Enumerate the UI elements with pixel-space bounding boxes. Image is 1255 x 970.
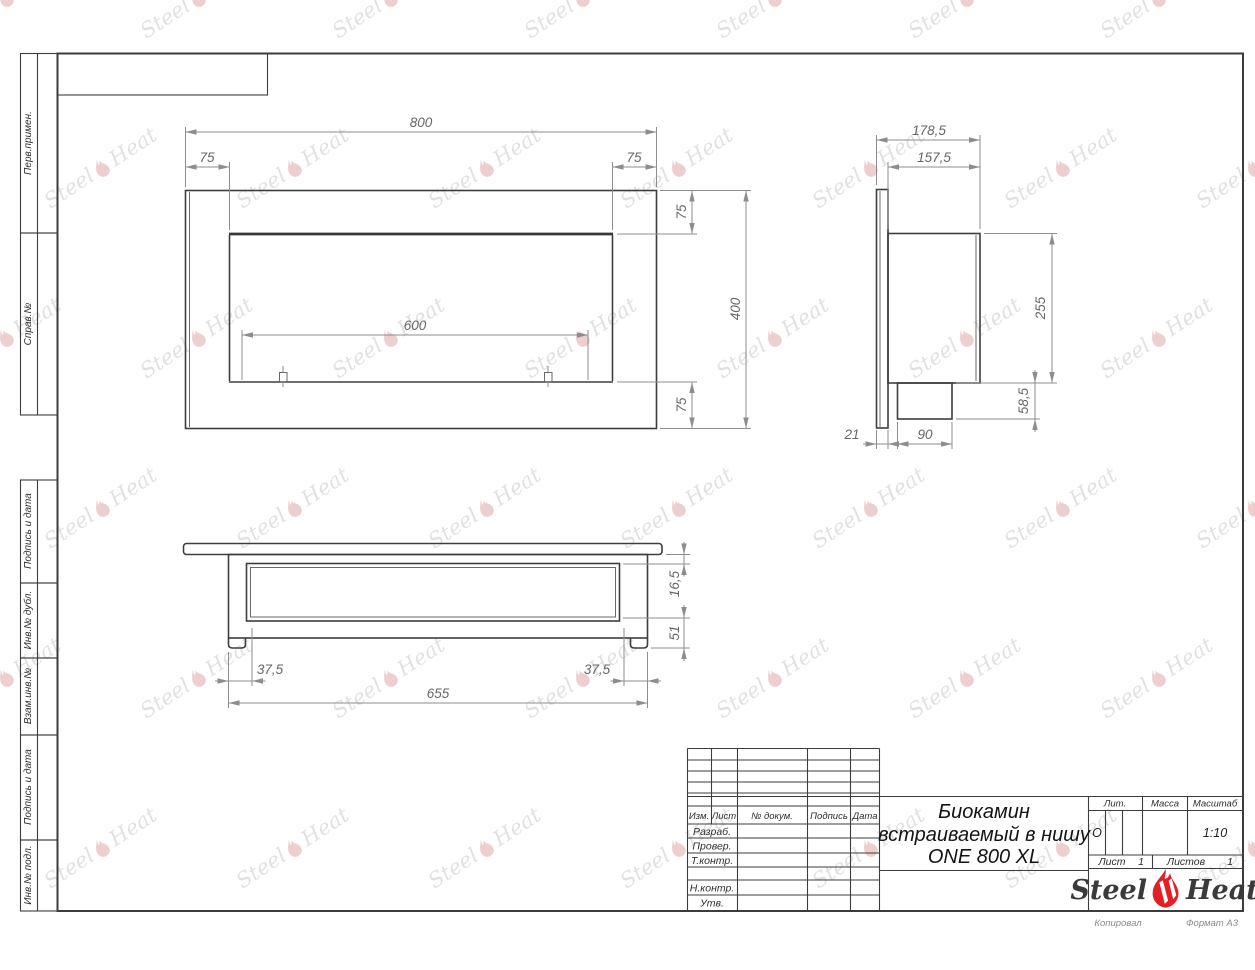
copied-by-label: Копировал bbox=[1094, 918, 1142, 929]
mount-clip bbox=[545, 366, 553, 387]
sheet-label: Лист bbox=[1097, 856, 1125, 868]
side-body bbox=[888, 234, 980, 384]
sheets-label: Листов bbox=[1166, 856, 1206, 868]
product-title-line3: ONE 800 XL bbox=[928, 846, 1040, 868]
frame-footer: Копировал Формат А3 bbox=[1094, 918, 1238, 929]
bottom-front-plate bbox=[184, 544, 663, 555]
col-podpis: Подпись bbox=[810, 811, 848, 822]
sidebar-label: Справ.№ bbox=[23, 302, 34, 345]
sheet-frame bbox=[58, 54, 1244, 912]
side-view bbox=[877, 190, 981, 429]
dim-bottom-lower-depth: 51 bbox=[667, 625, 682, 640]
sheet-number: 1 bbox=[1138, 856, 1144, 868]
dim-front-top-margin: 75 bbox=[674, 204, 689, 220]
dim-side-total-depth: 178,5 bbox=[912, 123, 946, 138]
sidebar-column: Перв.примен. Справ.№ Подпись и дата Инв.… bbox=[21, 54, 58, 912]
top-reference-block bbox=[58, 54, 268, 96]
sidebar-label: Подпись и дата bbox=[23, 493, 34, 569]
row-tkontr: Т.контр. bbox=[691, 855, 733, 867]
product-title: Биокамин встраиваемый в нишу ONE 800 XL bbox=[878, 801, 1091, 868]
dim-front-total-width: 800 bbox=[410, 115, 433, 130]
row-razrab: Разраб. bbox=[693, 826, 731, 838]
lit-label: Лит. bbox=[1103, 799, 1126, 810]
logo-heat-text: Heat bbox=[1185, 875, 1255, 906]
dim-side-duct-height: 58,5 bbox=[1016, 387, 1031, 414]
dim-front-right-margin: 75 bbox=[626, 150, 642, 165]
brand-logo: Steel Heat bbox=[1070, 869, 1255, 908]
front-outer-panel bbox=[186, 191, 657, 429]
dim-side-flange-thickness: 21 bbox=[843, 427, 859, 442]
mass-label: Масса bbox=[1151, 799, 1179, 810]
bottom-foot-left bbox=[229, 638, 246, 648]
product-title-line1: Биокамин bbox=[938, 801, 1030, 823]
dim-front-total-height: 400 bbox=[728, 297, 743, 320]
side-view-dimensions: 178,5 157,5 255 58,5 21 90 bbox=[843, 123, 1057, 449]
dim-side-duct-width: 90 bbox=[917, 427, 933, 442]
dim-front-opening-width: 600 bbox=[404, 318, 427, 333]
dim-bottom-offset-left: 37,5 bbox=[257, 662, 284, 677]
sidebar-label: Инв.№ подл. bbox=[23, 845, 34, 904]
lit-value: О bbox=[1092, 826, 1102, 840]
bottom-view bbox=[184, 544, 663, 649]
drawing-sheet: SteelHeatSteelHeatSteelHeatSteelHeatStee… bbox=[0, 0, 1255, 970]
logo-steel-text: Steel bbox=[1070, 875, 1147, 906]
sidebar-label: Перв.примен. bbox=[23, 111, 34, 175]
side-wall-flange bbox=[877, 190, 889, 429]
row-utv: Утв. bbox=[699, 898, 724, 910]
bottom-glass-frame-inner bbox=[251, 568, 616, 618]
row-nkontr: Н.контр. bbox=[690, 883, 734, 895]
scale-label: Масштаб bbox=[1193, 799, 1238, 810]
front-view bbox=[186, 191, 657, 429]
dim-side-body-height: 255 bbox=[1033, 296, 1048, 320]
col-dokum: № докум. bbox=[751, 811, 793, 822]
dim-bottom-inner-length: 655 bbox=[427, 686, 450, 701]
mount-clip bbox=[280, 366, 288, 387]
dim-bottom-offset-right: 37,5 bbox=[584, 662, 611, 677]
dim-side-body-depth: 157,5 bbox=[917, 150, 951, 165]
col-data: Дата bbox=[851, 811, 877, 822]
product-title-line2: встраиваемый в нишу bbox=[878, 824, 1091, 846]
col-izm: Изм. bbox=[689, 811, 709, 822]
bottom-glass-frame-outer bbox=[247, 564, 620, 622]
sidebar-label: Подпись и дата bbox=[23, 749, 34, 825]
sheets-total: 1 bbox=[1227, 856, 1233, 868]
technical-drawing: Перв.примен. Справ.№ Подпись и дата Инв.… bbox=[0, 0, 1255, 970]
flame-icon bbox=[1153, 869, 1179, 908]
bottom-body bbox=[229, 555, 648, 639]
dim-bottom-flange-gap: 16,5 bbox=[667, 570, 682, 597]
scale-value: 1:10 bbox=[1203, 826, 1227, 840]
format-label: Формат А3 bbox=[1186, 918, 1239, 929]
sidebar-label: Инв.№ дубл. bbox=[22, 591, 34, 650]
sidebar-label: Взам.инв.№ bbox=[23, 668, 34, 724]
col-list: Лист bbox=[711, 811, 737, 822]
row-prover: Провер. bbox=[692, 841, 731, 853]
dim-front-left-margin: 75 bbox=[199, 150, 215, 165]
dim-front-bottom-margin: 75 bbox=[674, 397, 689, 413]
bottom-foot-right bbox=[631, 638, 648, 648]
side-lower-duct bbox=[898, 383, 953, 419]
